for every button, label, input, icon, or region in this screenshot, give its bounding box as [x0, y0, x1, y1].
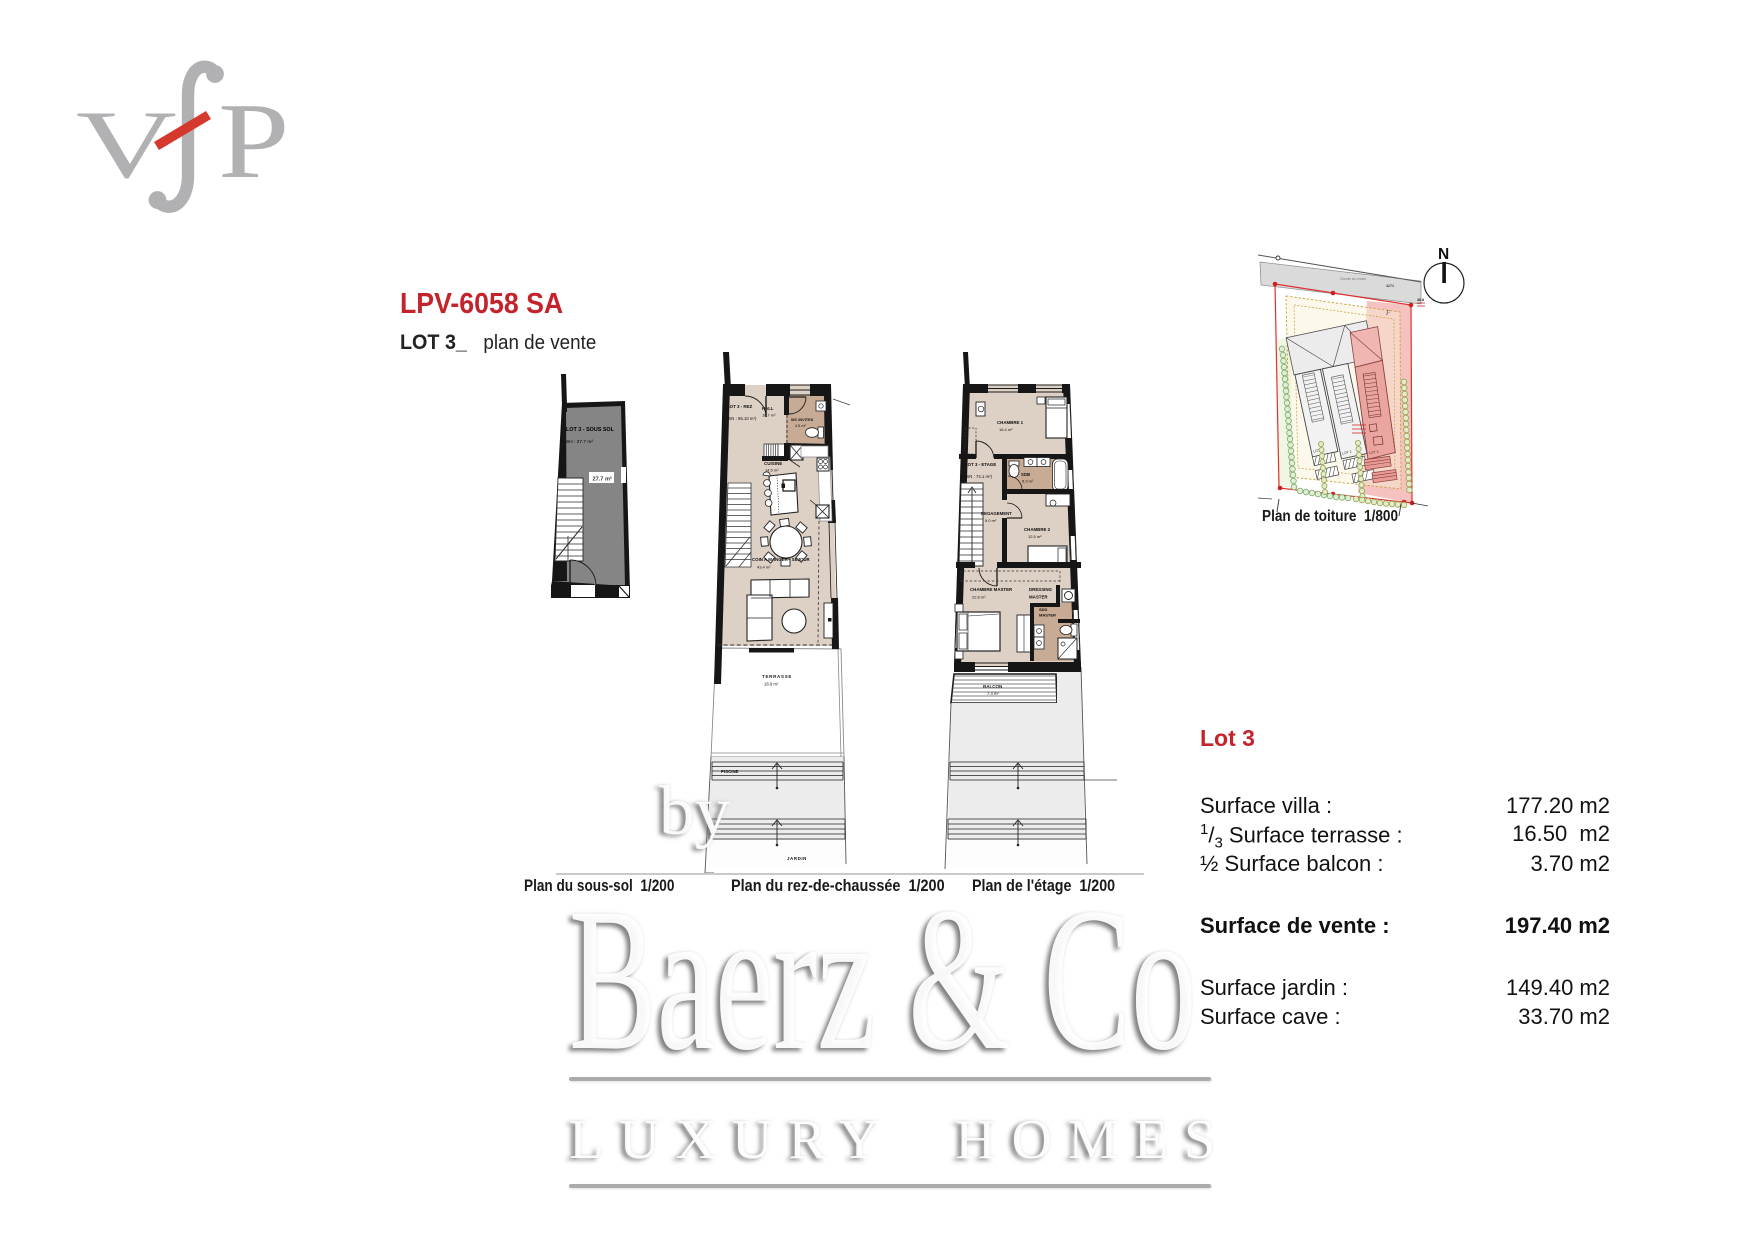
svg-text:MASTER: MASTER	[1039, 613, 1056, 618]
svg-text:36.8: 36.8	[1417, 298, 1424, 302]
svg-text:9.0 m²: 9.0 m²	[985, 518, 997, 523]
svg-text:P: P	[218, 81, 289, 201]
svg-text:HALL: HALL	[762, 406, 774, 411]
svg-text:7.4 m²: 7.4 m²	[987, 691, 999, 696]
svg-text:LOT 3 - SOUS SOL: LOT 3 - SOUS SOL	[566, 427, 615, 433]
svg-text:4271: 4271	[1386, 284, 1394, 288]
svg-text:BALCON: BALCON	[983, 684, 1002, 689]
svg-text:CHAMBRE 1: CHAMBRE 1	[997, 420, 1024, 425]
svg-text:16.4 m²: 16.4 m²	[999, 427, 1013, 432]
svg-text:N: N	[1438, 246, 1449, 263]
svg-text:10.7 m²: 10.7 m²	[762, 413, 776, 418]
svg-text:TERRASSE: TERRASSE	[762, 674, 792, 679]
svg-text:(SN : 65.10 m²): (SN : 65.10 m²)	[727, 416, 757, 421]
svg-text:WC INVITES: WC INVITES	[791, 418, 814, 422]
svg-text:27.7 m²: 27.7 m²	[593, 476, 612, 483]
svg-text:SDB: SDB	[1021, 472, 1030, 477]
svg-text:4.5 m²: 4.5 m²	[795, 424, 806, 428]
svg-text:14.5 m²: 14.5 m²	[765, 468, 779, 473]
svg-text:CUISINE: CUISINE	[764, 461, 782, 466]
svg-text:LOT 3 - REZ: LOT 3 - REZ	[727, 404, 752, 409]
svg-text:18.9 m²: 18.9 m²	[764, 682, 779, 687]
svg-text:(SN : 74.1 m²): (SN : 74.1 m²)	[965, 474, 993, 479]
svg-text:JARDIN: JARDIN	[787, 856, 807, 861]
svg-text:SDD: SDD	[1039, 607, 1048, 612]
svg-text:22.8 m²: 22.8 m²	[972, 595, 986, 600]
svg-text:F: F	[1385, 309, 1391, 317]
svg-text:DRESSING: DRESSING	[1029, 587, 1053, 592]
svg-text:MASTER: MASTER	[1029, 595, 1048, 600]
svg-text:43.4 m²: 43.4 m²	[757, 565, 771, 570]
svg-text:COIN A MANGER - SEJOUR: COIN A MANGER - SEJOUR	[752, 557, 811, 562]
svg-text:DEGAGEMENT: DEGAGEMENT	[981, 511, 1012, 516]
svg-text:12.5 m²: 12.5 m²	[1028, 534, 1042, 539]
svg-text:SH : 27.7 m²: SH : 27.7 m²	[566, 439, 593, 445]
svg-text:LOT 3 - ETAGE: LOT 3 - ETAGE	[965, 462, 996, 467]
svg-text:CHAMBRE MASTER: CHAMBRE MASTER	[970, 587, 1013, 592]
svg-text:Chemin du Levant: Chemin du Levant	[1340, 277, 1366, 281]
svg-text:5.3 m²: 5.3 m²	[1022, 479, 1034, 484]
svg-text:CHAMBRE 2: CHAMBRE 2	[1024, 527, 1051, 532]
